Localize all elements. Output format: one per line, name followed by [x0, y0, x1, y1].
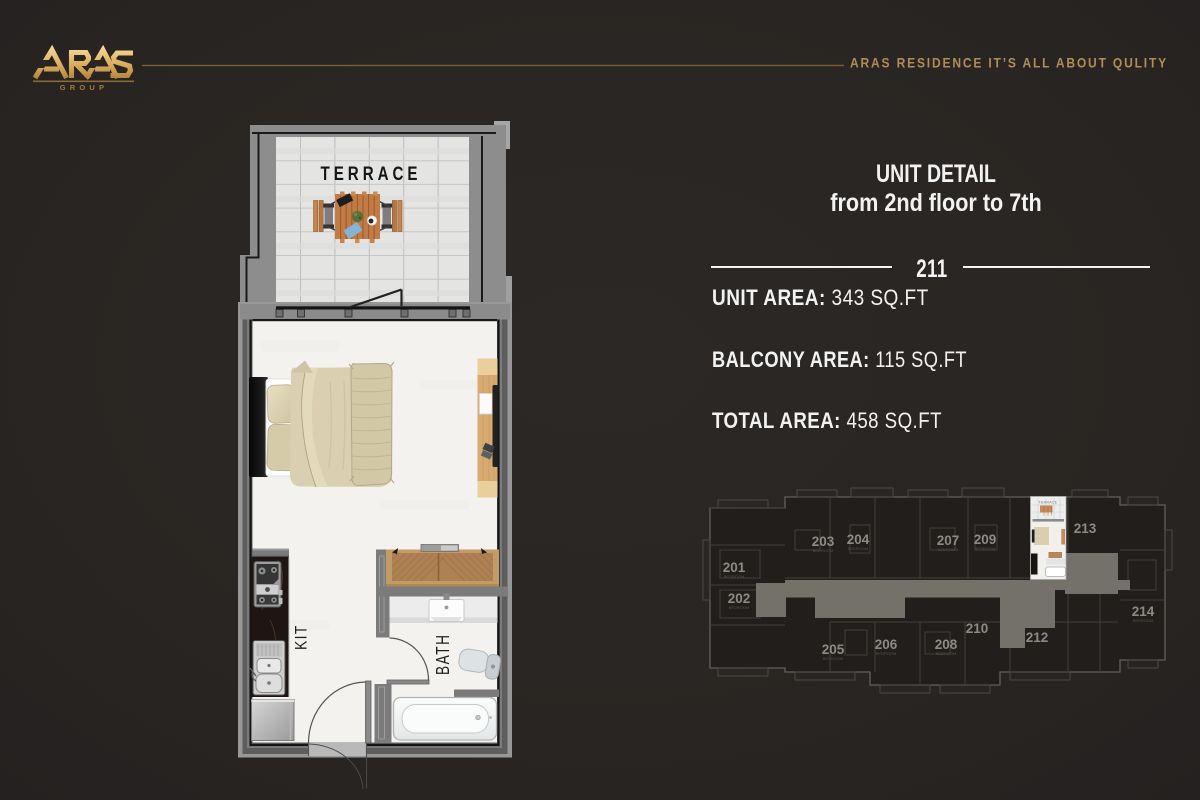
svg-text:BEDROOM: BEDROOM — [724, 574, 745, 579]
svg-text:204: 204 — [847, 532, 870, 547]
svg-text:BEDROOM: BEDROOM — [823, 656, 844, 661]
svg-text:213: 213 — [1074, 521, 1097, 536]
svg-text:209: 209 — [974, 532, 997, 547]
svg-text:BATH: BATH — [433, 634, 453, 676]
svg-text:BEDROOM: BEDROOM — [876, 651, 897, 656]
svg-text:BEDROOM: BEDROOM — [813, 548, 834, 553]
svg-text:BEDROOM: BEDROOM — [1133, 618, 1154, 623]
svg-text:BEDROOM: BEDROOM — [848, 546, 869, 551]
svg-text:BEDROOM: BEDROOM — [729, 605, 750, 610]
svg-text:TERRACE: TERRACE — [321, 164, 422, 185]
svg-text:207: 207 — [937, 533, 960, 548]
svg-text:202: 202 — [728, 591, 751, 606]
svg-text:201: 201 — [723, 560, 746, 575]
svg-text:205: 205 — [822, 642, 845, 657]
svg-text:BEDROOM: BEDROOM — [936, 651, 957, 656]
svg-text:BEDROOM: BEDROOM — [938, 547, 959, 552]
svg-text:KIT: KIT — [292, 625, 311, 651]
svg-text:TERRACE: TERRACE — [1039, 501, 1058, 505]
svg-text:BEDROOM: BEDROOM — [975, 546, 996, 551]
svg-text:210: 210 — [966, 621, 989, 636]
svg-text:208: 208 — [935, 637, 958, 652]
svg-text:212: 212 — [1026, 630, 1049, 645]
svg-text:203: 203 — [812, 534, 835, 549]
svg-text:214: 214 — [1132, 604, 1155, 619]
svg-text:206: 206 — [875, 637, 898, 652]
